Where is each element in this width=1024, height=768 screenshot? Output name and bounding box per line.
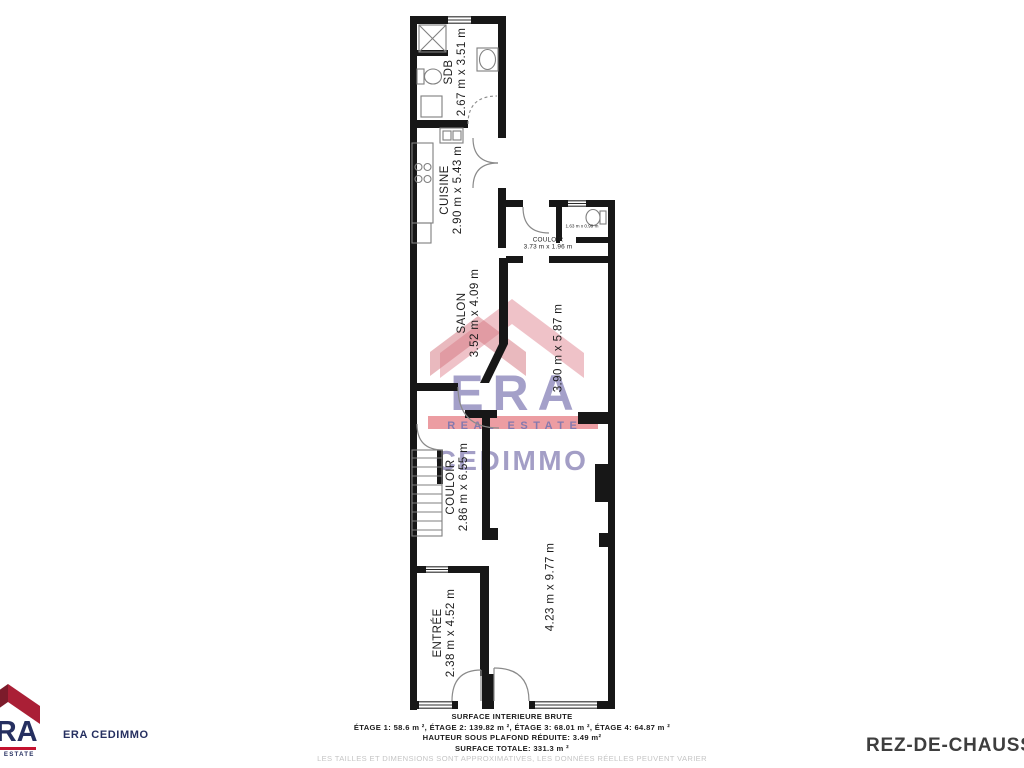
era-logo-roof-icon bbox=[0, 0, 1024, 768]
room-label-sdb: SDB 2.67 m x 3.51 m bbox=[443, 28, 469, 116]
room-label-grande-piece: 4.23 m x 9.77 m bbox=[545, 543, 558, 631]
agency-name: ERA CEDIMMO bbox=[63, 729, 149, 741]
room-dims: 3.90 m x 5.87 m bbox=[553, 304, 566, 392]
room-label-cuisine: CUISINE 2.90 m x 5.43 m bbox=[439, 146, 465, 234]
surface-hauteur: HAUTEUR SOUS PLAFOND RÉDUITE: 3.49 m² bbox=[212, 733, 812, 744]
room-label-entree: ENTRÉE 2.38 m x 4.52 m bbox=[432, 589, 458, 677]
surface-summary: SURFACE INTERIEURE BRUTE ÉTAGE 1: 58.6 m… bbox=[212, 712, 812, 765]
room-name: SDB bbox=[443, 60, 456, 85]
surface-etages: ÉTAGE 1: 58.6 m ², ÉTAGE 2: 139.82 m ², … bbox=[212, 723, 812, 734]
room-dims: 1.63 m x 0.99 m bbox=[566, 224, 599, 229]
room-dims: 2.90 m x 5.43 m bbox=[452, 146, 465, 234]
floor-plan-page: ERA REAL ESTATE CEDIMMO bbox=[0, 0, 1024, 768]
room-dims: 2.86 m x 6.55 m bbox=[458, 443, 471, 531]
room-name: SALON bbox=[456, 293, 469, 334]
room-dims: 4.23 m x 9.77 m bbox=[545, 543, 558, 631]
room-name: CUISINE bbox=[439, 165, 452, 214]
room-dims: 2.67 m x 3.51 m bbox=[456, 28, 469, 116]
room-label-wc: 1.63 m x 0.99 m bbox=[566, 224, 599, 229]
room-name: COULOIR bbox=[445, 459, 458, 514]
disclaimer: LES TAILLES ET DIMENSIONS SONT APPROXIMA… bbox=[212, 754, 812, 765]
surface-totale: SURFACE TOTALE: 331.3 m ² bbox=[212, 744, 812, 755]
room-dims: 3.52 m x 4.09 m bbox=[469, 269, 482, 357]
surface-title: SURFACE INTERIEURE BRUTE bbox=[212, 712, 812, 723]
room-name: ENTRÉE bbox=[432, 608, 445, 657]
page-title: REZ-DE-CHAUSSÉE bbox=[866, 735, 1024, 757]
room-dims: 2.38 m x 4.52 m bbox=[445, 589, 458, 677]
era-logo-text: ERA bbox=[0, 716, 40, 749]
room-name: COULOIR bbox=[524, 237, 573, 244]
room-dims: 3.73 m x 1.96 m bbox=[524, 244, 573, 251]
room-label-couloir-bas: COULOIR 2.86 m x 6.55 m bbox=[445, 443, 471, 531]
era-logo-bar bbox=[0, 747, 36, 750]
era-logo-real-estate: REAL ESTATE bbox=[0, 751, 40, 758]
room-label-piece-arriere: 3.90 m x 5.87 m bbox=[553, 304, 566, 392]
room-label-couloir-haut: COULOIR 3.73 m x 1.96 m bbox=[524, 237, 573, 252]
room-label-salon: SALON 3.52 m x 4.09 m bbox=[456, 269, 482, 357]
